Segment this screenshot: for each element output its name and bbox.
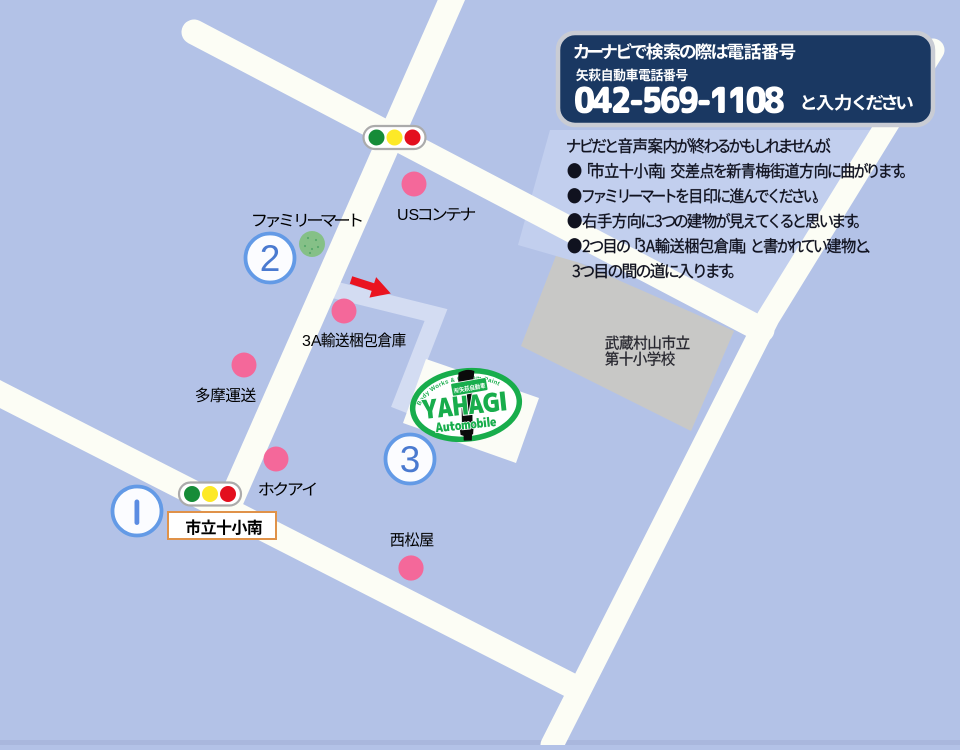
svg-text:3: 3 <box>400 439 421 480</box>
svg-text:3A: 3A <box>302 333 322 350</box>
svg-text:2: 2 <box>260 238 281 279</box>
svg-text:US: US <box>397 207 419 224</box>
